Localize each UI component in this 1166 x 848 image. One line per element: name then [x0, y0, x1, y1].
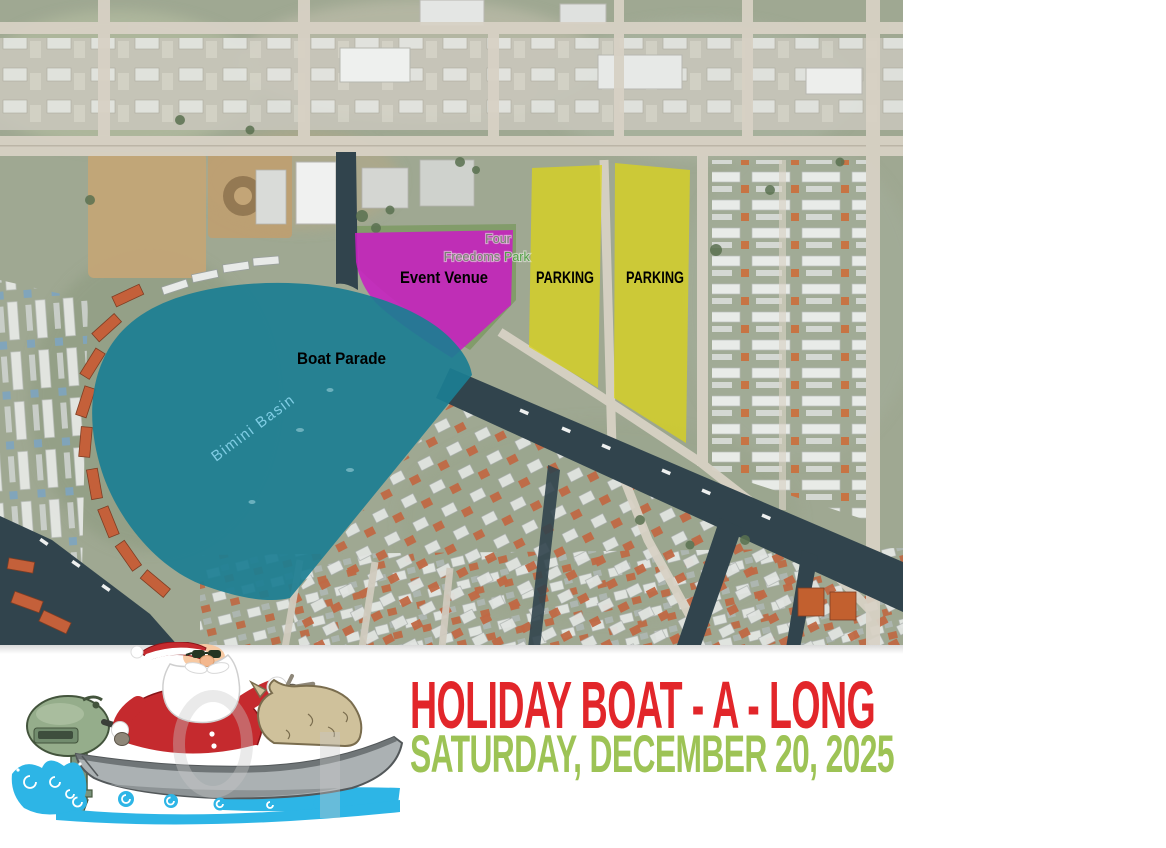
event-venue-label: Event Venue [400, 269, 488, 287]
flyer-page: Four Freedoms Park Bimini Basin Event Ve… [0, 0, 1166, 848]
parking-overlay-right [614, 163, 690, 443]
map-canvas: Four Freedoms Park Bimini Basin Event Ve… [0, 0, 903, 648]
park-name-line2-word2: Park [504, 250, 530, 264]
boat-parade-label: Boat Parade [297, 350, 386, 368]
event-map: Four Freedoms Park Bimini Basin Event Ve… [0, 0, 903, 648]
parking-label-right: PARKING [626, 269, 684, 287]
park-name-line2-word1: Freedoms [444, 250, 500, 264]
parking-label-left: PARKING [536, 269, 594, 287]
park-name-line1: Four [485, 232, 511, 246]
santa-boat-illustration [8, 642, 408, 825]
event-date: SATURDAY, DECEMBER 20, 2025 [410, 728, 894, 781]
